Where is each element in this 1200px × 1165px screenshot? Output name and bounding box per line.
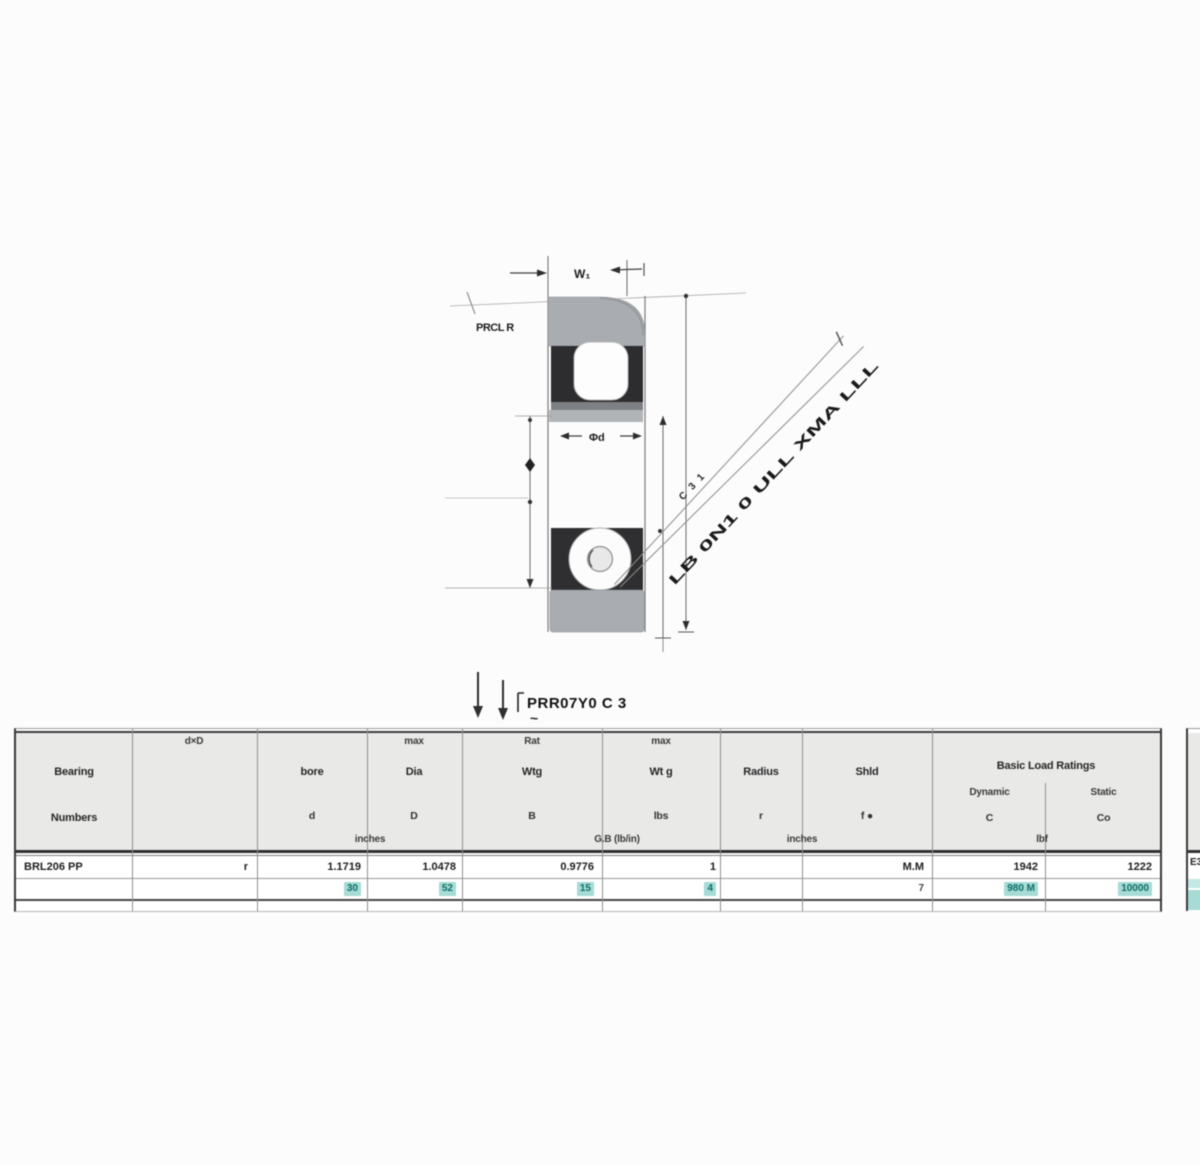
cell-shield-metric: 7 xyxy=(806,879,924,899)
cell-col6: 1 xyxy=(606,856,716,878)
left-dim-line xyxy=(445,416,552,588)
header-radius: Radius xyxy=(722,765,800,779)
metric-highlight: 52 xyxy=(439,882,456,896)
edge-teal-band-2 xyxy=(1188,890,1200,910)
edge-teal-band-1 xyxy=(1188,879,1200,888)
header-col2-top: d×D xyxy=(139,735,249,749)
header-bearing-1: Bearing xyxy=(19,765,129,779)
load-subcol-rule xyxy=(1045,783,1046,911)
metric-highlight: 30 xyxy=(344,882,361,896)
header-load-dynamic: Dynamic xyxy=(934,786,1045,800)
width-dimension: W₁ xyxy=(510,263,644,281)
bearing-drawing: W₁ PRCL R Φd xyxy=(430,240,900,726)
header-bore: bore xyxy=(262,765,362,779)
cell-load-dynamic: 1942 xyxy=(936,856,1038,878)
metric-highlight: 980 M xyxy=(1004,882,1038,896)
ball-rivet xyxy=(588,547,613,572)
header-dia-top: max xyxy=(369,735,459,749)
width-dim-label: W₁ xyxy=(574,267,590,281)
raceway-shoulder xyxy=(551,402,643,410)
cell-bore-metric: 30 xyxy=(261,879,361,899)
corner-callout-label: PRCL R xyxy=(476,322,514,334)
edge-separator xyxy=(1188,850,1200,853)
header-width-sym: B xyxy=(464,809,600,823)
col-rule xyxy=(602,729,603,911)
spec-table: Bearing Numbers d×D bore d max Dia D Rat… xyxy=(14,728,1162,912)
header-dia-sym: D xyxy=(369,809,459,823)
pointer-note: PRR07Y0 C 3 xyxy=(527,695,627,712)
outer-ring-top xyxy=(548,297,645,346)
col-rule xyxy=(462,729,463,911)
cell-dia: 1.0478 xyxy=(371,856,456,878)
bearing-body xyxy=(548,296,645,632)
pointer-arrows: PRR07Y0 C 3 ~ xyxy=(473,672,627,726)
edge-row-text: E3 xyxy=(1190,857,1200,868)
col-rule xyxy=(932,729,933,911)
header-load: Basic Load Ratings xyxy=(934,759,1158,773)
cell-width-metric: 15 xyxy=(466,879,594,899)
metric-highlight: 10000 xyxy=(1118,882,1152,896)
header-load-static: Static xyxy=(1047,786,1160,800)
catalog-page: W₁ PRCL R Φd xyxy=(0,0,1200,1165)
cell-dynamic-metric: 980 M xyxy=(936,879,1038,899)
col-rule xyxy=(132,729,133,911)
header-dia: Dia xyxy=(369,765,459,779)
header-separator xyxy=(16,850,1160,853)
cell-bearing-number: BRL206 PP xyxy=(24,856,129,878)
col-rule xyxy=(257,729,258,911)
header-weight-top: max xyxy=(604,735,718,749)
cell-bore: 1.1719 xyxy=(261,856,361,878)
unit-load: lbf xyxy=(992,833,1092,847)
unit-inches-2: inches xyxy=(752,833,852,847)
cell-col6-metric: 4 xyxy=(606,879,716,899)
bore-dimension: Φd xyxy=(560,432,642,444)
col-rule xyxy=(802,729,803,911)
edge-table-fragment: E3 xyxy=(1186,728,1200,911)
metric-highlight: 4 xyxy=(704,882,716,896)
header-bearing-2: Numbers xyxy=(19,811,129,825)
unit-inches-1: inches xyxy=(320,833,420,847)
header-weight-sym: lbs xyxy=(604,809,718,823)
unit-mid: G.B (lb/in) xyxy=(562,833,672,847)
header-bore-sym: d xyxy=(262,809,362,823)
cell-width: 0.9776 xyxy=(466,856,594,878)
edge-header-band xyxy=(1188,733,1200,850)
header-shield: Shld xyxy=(804,765,930,779)
corner-callout: PRCL R xyxy=(467,292,514,334)
bore-dim-label: Φd xyxy=(589,432,605,444)
ball-top xyxy=(574,342,628,400)
cell-shield: M.M xyxy=(806,856,924,878)
header-width-top: Rat xyxy=(464,735,600,749)
header-load-stat-sym: Co xyxy=(1047,811,1160,825)
header-radius-sym: r xyxy=(722,809,800,823)
cell-static-metric: 10000 xyxy=(1049,879,1152,899)
pointer-note-tilde: ~ xyxy=(530,710,538,726)
table-top-rule xyxy=(16,731,1160,733)
cell-load-static: 1222 xyxy=(1049,856,1152,878)
header-shield-sym: f ● xyxy=(804,809,930,823)
cell-dia-metric: 52 xyxy=(371,879,456,899)
metric-highlight: 15 xyxy=(577,882,594,896)
header-width: Wtg xyxy=(464,765,600,779)
col-rule xyxy=(367,729,368,911)
inner-ring-top xyxy=(549,410,643,422)
col-rule xyxy=(720,729,721,911)
row-separator-bold xyxy=(16,899,1160,901)
cell-col2: r xyxy=(136,856,248,878)
right-dim-lines xyxy=(655,294,694,652)
leader-note-small: C 3 1 xyxy=(677,470,708,502)
header-load-dyn-sym: C xyxy=(934,811,1045,825)
header-weight: Wt g xyxy=(604,765,718,779)
outer-ring-bottom xyxy=(550,590,644,632)
